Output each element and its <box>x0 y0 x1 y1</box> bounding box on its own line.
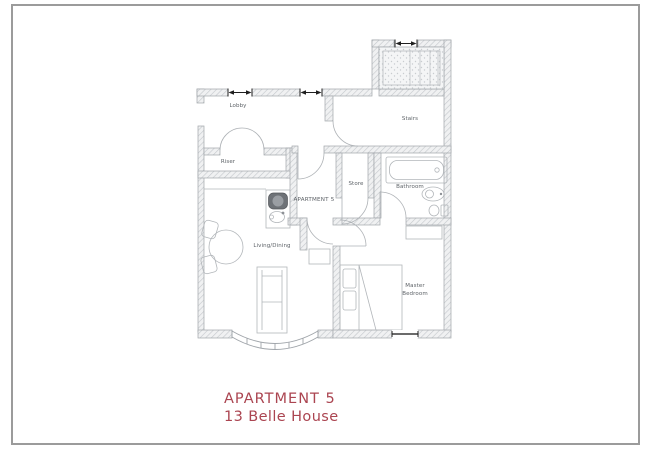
caption-title: APARTMENT 5 <box>224 391 336 407</box>
bedroom-window <box>392 330 418 338</box>
store-label: Store <box>348 181 364 187</box>
hall-label: APARTMENT 5 <box>293 197 334 203</box>
floorplan-svg: Lobby Stairs Riser Store Bathroom APARTM… <box>0 0 650 450</box>
living-dining-label: Living/Dining <box>253 243 290 249</box>
page: Lobby Stairs Riser Store Bathroom APARTM… <box>0 0 650 450</box>
master-bedroom-label-line-2: Bedroom <box>402 291 428 297</box>
caption-subtitle: 13 Belle House <box>224 409 339 425</box>
page-border <box>12 5 639 444</box>
stairs <box>379 47 444 89</box>
bathroom-label: Bathroom <box>396 184 424 190</box>
stairs-label: Stairs <box>402 116 418 122</box>
riser-label: Riser <box>221 159 236 165</box>
master-bedroom-label-line-1: Master <box>405 283 425 289</box>
lobby-label: Lobby <box>229 103 247 109</box>
